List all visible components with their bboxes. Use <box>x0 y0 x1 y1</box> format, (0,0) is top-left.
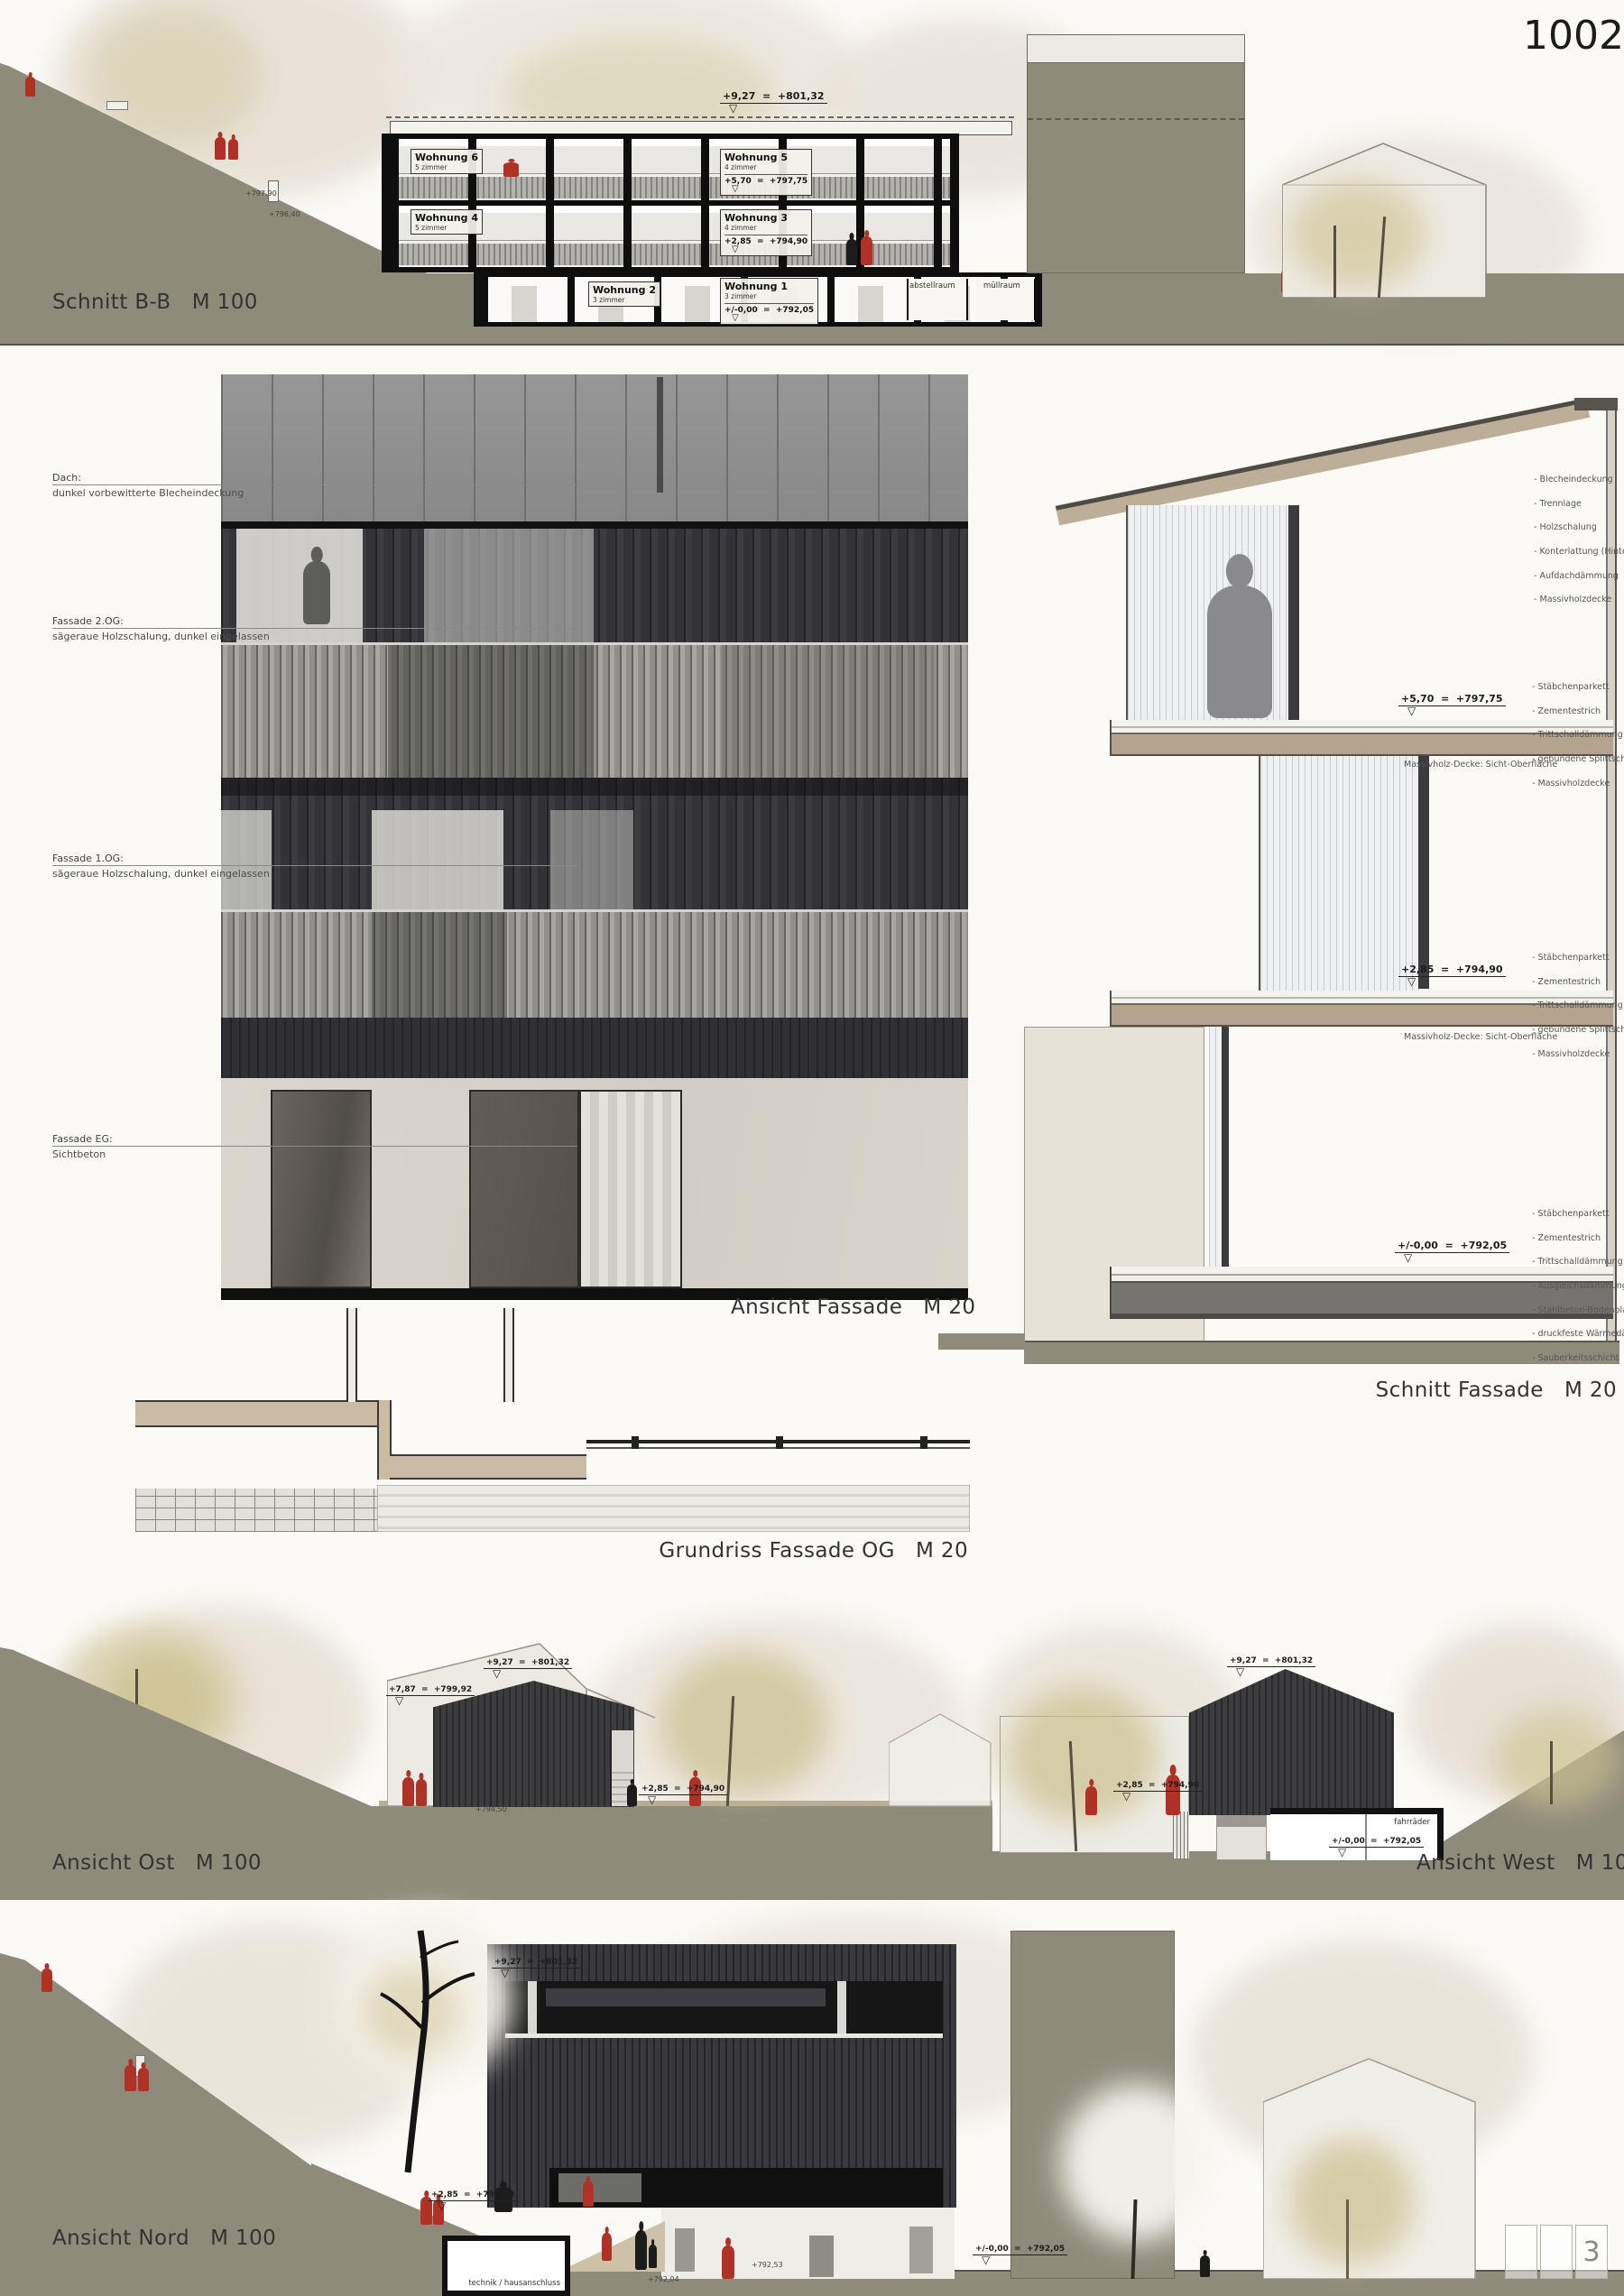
plan-wall-band-step <box>390 1454 586 1480</box>
roof-vent <box>657 377 663 493</box>
person-figure <box>602 2227 612 2261</box>
tree-trunk <box>1346 2199 1349 2279</box>
person-figure <box>861 230 872 265</box>
floor-buildup-list: - Stäbchenparkett - Zementestrich - Trit… <box>1521 669 1624 801</box>
person-figure <box>125 2059 136 2091</box>
level-marker-icon: ▽ <box>395 1696 403 1705</box>
eg-door <box>809 2236 834 2277</box>
balcony-opening-shadow <box>372 912 507 1018</box>
floor-buildup-list: - Stäbchenparkett - Zementestrich - Trit… <box>1521 940 1624 1072</box>
tree-canopy <box>1288 2138 1415 2264</box>
window-post <box>1418 756 1429 989</box>
tower-joint-dashed <box>1028 118 1244 120</box>
person-figure <box>402 1770 414 1806</box>
plan-window-frame <box>503 1308 514 1402</box>
person-figure <box>635 2221 647 2270</box>
technik-label: technik / hausanschluss <box>468 2279 560 2288</box>
level-marker-icon: ▽ <box>732 315 814 322</box>
roofline-dashed <box>386 116 1014 118</box>
section-glazing-eg <box>1209 1027 1222 1268</box>
concrete-tower <box>1027 34 1245 273</box>
person-figure <box>228 134 238 160</box>
eg-glass-door <box>469 1090 579 1288</box>
balcony-reflection <box>722 645 934 778</box>
level-marker-icon: ▽ <box>729 104 737 113</box>
plan-window-frame <box>346 1308 357 1402</box>
eg-glass-door <box>271 1090 372 1288</box>
plan-mullion <box>920 1436 927 1449</box>
window-post <box>1288 505 1299 720</box>
retaining-wall <box>106 101 128 110</box>
stone-panel <box>1216 1815 1267 1860</box>
level-marker-icon: ▽ <box>1404 1253 1412 1262</box>
tree-trunk <box>1333 226 1336 298</box>
annotation-fassade-2og: Fassade 2.OG: sägeraue Holzschalung, dun… <box>52 615 577 642</box>
person-figure <box>583 2176 594 2207</box>
elevation-mark-section-top: +5,70 = +797,75 ▽ <box>1398 693 1506 715</box>
waste-room-label: müllraum <box>983 281 1020 290</box>
panel-title-ansicht-west: Ansicht West M 100 <box>1416 1851 1619 1875</box>
tower-cap <box>1028 35 1244 63</box>
unit-label-wohnung2: Wohnung 2 3 zimmer <box>588 281 660 307</box>
window-post <box>1222 1027 1229 1268</box>
plan-paving-grid <box>135 1489 377 1532</box>
terrain-elevation-label: +792,53 <box>752 2261 783 2269</box>
plan-wall-band <box>135 1400 377 1427</box>
facade-fascia-band <box>221 1018 968 1078</box>
terrain-elevation-label: +796,40 <box>269 210 300 218</box>
section-ridge-cap <box>1574 398 1618 410</box>
person-figure <box>1085 1779 1097 1815</box>
technik-box: technik / hausanschluss <box>442 2236 570 2296</box>
person-figure-seated <box>503 159 519 177</box>
elevation-mark-nord-ground: +/-0,00 = +792,05 ▽ <box>973 2245 1067 2264</box>
terrain-elevation-label: +797,90 <box>245 189 277 198</box>
eg-door <box>675 2228 695 2272</box>
panel-title-ansicht-nord: Ansicht Nord M 100 <box>52 2227 276 2250</box>
white-house-outline-small <box>889 1712 992 1807</box>
deck-surface-label: Massivholz-Decke: Sicht-Oberfläche <box>1404 760 1557 770</box>
deck-surface-label: Massivholz-Decke: Sicht-Oberfläche <box>1404 1032 1557 1042</box>
window-slot <box>528 1981 537 2033</box>
tree-canopy <box>1493 1710 1619 1809</box>
level-marker-icon: ▽ <box>732 246 807 254</box>
annotation-fassade-eg: Fassade EG: Sichtbeton <box>52 1133 577 1160</box>
level-marker-icon: ▽ <box>732 186 807 193</box>
window-slot <box>837 1981 846 2033</box>
facade-1og-balustrade-band <box>221 909 968 1018</box>
unit-label-wohnung4: Wohnung 4 5 zimmer <box>411 209 483 235</box>
elevation-mark-section-ground: +/-0,00 = +792,05 ▽ <box>1395 1240 1509 1262</box>
elevation-mark-nord-floor: +2,85 = +794,90 ▽ <box>429 2190 517 2210</box>
panel-title-schnitt-bb: Schnitt B-B M 100 <box>52 290 258 314</box>
person-figure-child <box>649 2239 657 2268</box>
elevation-mark-ost-ridge: +9,27 = +801,32 ▽ <box>484 1658 572 1678</box>
terrain-elevation-label: +792,04 <box>648 2275 679 2283</box>
plan-mullion <box>776 1436 783 1449</box>
bike-room-label: fahrräder <box>1394 1818 1430 1827</box>
grille-fence <box>1173 1812 1189 1858</box>
tree-canopy <box>1290 180 1426 289</box>
person-figure <box>42 1963 52 1992</box>
stone-panel-header <box>1217 1816 1266 1827</box>
elevation-mark-ost-floor: +2,85 = +794,90 ▽ <box>639 1784 727 1804</box>
tree-trunk <box>1550 1741 1553 1804</box>
person-silhouette-section <box>1207 554 1272 718</box>
plan-mullion <box>632 1436 639 1449</box>
person-figure <box>1200 2250 1210 2277</box>
unit-label-wohnung3: Wohnung 3 4 zimmer +2,85 = +794,90 ▽ <box>720 209 812 256</box>
glass-reflection <box>546 1988 826 2006</box>
level-marker-icon: ▽ <box>1236 1667 1244 1676</box>
facade-fascia-shadow <box>221 778 968 796</box>
person-figure <box>215 132 226 160</box>
roof-buildup-list: - Blecheindeckung - Trennlage - Holzscha… <box>1523 462 1624 618</box>
level-marker-icon: ▽ <box>1338 1848 1346 1857</box>
terrain-ground-ost <box>271 1806 992 1900</box>
level-marker-icon: ▽ <box>493 1669 501 1678</box>
section-glazing-mid-floor <box>1259 756 1419 991</box>
plan-terrace-planks <box>377 1485 970 1532</box>
elevation-mark-ost-eaves: +7,87 = +799,92 ▽ <box>386 1685 475 1705</box>
annotation-dach: Dach: dunkel vorbewitterte Blecheindecku… <box>52 472 577 499</box>
elevation-mark-ridge: +9,27 = +801,32 ▽ <box>720 90 827 113</box>
tree-canopy <box>659 1651 830 1795</box>
unit-label-wohnung1: Wohnung 1 3 zimmer +/-0,00 = +792,05 ▽ <box>720 278 818 325</box>
panel-title-ansicht-ost: Ansicht Ost M 100 <box>52 1851 262 1875</box>
tree-canopy <box>1006 1687 1159 1822</box>
level-marker-icon: ▽ <box>1407 706 1416 715</box>
person-figure <box>722 2237 734 2279</box>
level-marker-icon: ▽ <box>438 2201 446 2210</box>
person-figure <box>416 1773 427 1806</box>
elevation-mark-west-ridge: +9,27 = +801,32 ▽ <box>1227 1656 1315 1676</box>
level-marker-icon: ▽ <box>1122 1792 1130 1801</box>
tree-trunk-branches <box>361 1922 505 2174</box>
terrain-elevation-label: +794,50 <box>475 1805 507 1813</box>
elevation-mark-west-floor: +2,85 = +794,90 ▽ <box>1113 1781 1202 1801</box>
nord-window-band <box>505 1981 943 2033</box>
person-silhouette-window <box>303 547 330 624</box>
section-terrain-nib <box>938 1333 1025 1350</box>
elevation-mark-section-mid: +2,85 = +794,90 ▽ <box>1398 964 1506 986</box>
level-marker-icon: ▽ <box>982 2255 990 2264</box>
eg-curtain-window <box>579 1090 682 1288</box>
ground-buildup-list: - Stäbchenparkett - Zementestrich - Trit… <box>1521 1196 1624 1376</box>
level-marker-icon: ▽ <box>501 1969 509 1978</box>
nord-loggia-band <box>549 2168 943 2208</box>
elevation-mark-nord-ridge: +9,27 = +801,32 ▽ <box>492 1958 580 1978</box>
unit-label-wohnung6: Wohnung 6 5 zimmer <box>411 149 483 174</box>
tree-canopy-light <box>1060 2084 1213 2242</box>
person-figure <box>846 233 857 265</box>
page-indicator-box <box>1505 2225 1537 2279</box>
elevation-mark-west-ground: +/-0,00 = +792,05 ▽ <box>1329 1837 1424 1857</box>
nord-sill-line <box>505 2033 943 2038</box>
panel-title-grundriss-fassade: Grundriss Fassade OG M 20 <box>632 1539 968 1563</box>
facade-roof-band <box>221 374 968 529</box>
person-figure <box>25 72 35 97</box>
loggia-interior <box>558 2173 641 2202</box>
page-number: 3 <box>1582 2236 1600 2268</box>
page-indicator-box-current: 3 <box>1575 2225 1608 2279</box>
unit-label-wohnung5: Wohnung 5 4 zimmer +5,70 = +797,75 ▽ <box>720 149 812 196</box>
annotation-fassade-1og: Fassade 1.OG: sägeraue Holzschalung, dun… <box>52 853 577 880</box>
board-number: 1002 <box>1523 13 1624 59</box>
level-marker-icon: ▽ <box>1407 977 1416 986</box>
person-figure <box>138 2062 149 2091</box>
level-marker-icon: ▽ <box>648 1795 656 1804</box>
balcony-opening-shadow <box>388 645 594 778</box>
person-figure <box>627 1779 637 1806</box>
storage-room-label: abstellraum <box>909 281 955 290</box>
page-indicator-box <box>1540 2225 1573 2279</box>
eg-door <box>909 2227 933 2273</box>
panel-title-ansicht-fassade: Ansicht Fassade M 20 <box>731 1296 967 1319</box>
panel-title-schnitt-fassade: Schnitt Fassade M 20 <box>1353 1379 1617 1402</box>
